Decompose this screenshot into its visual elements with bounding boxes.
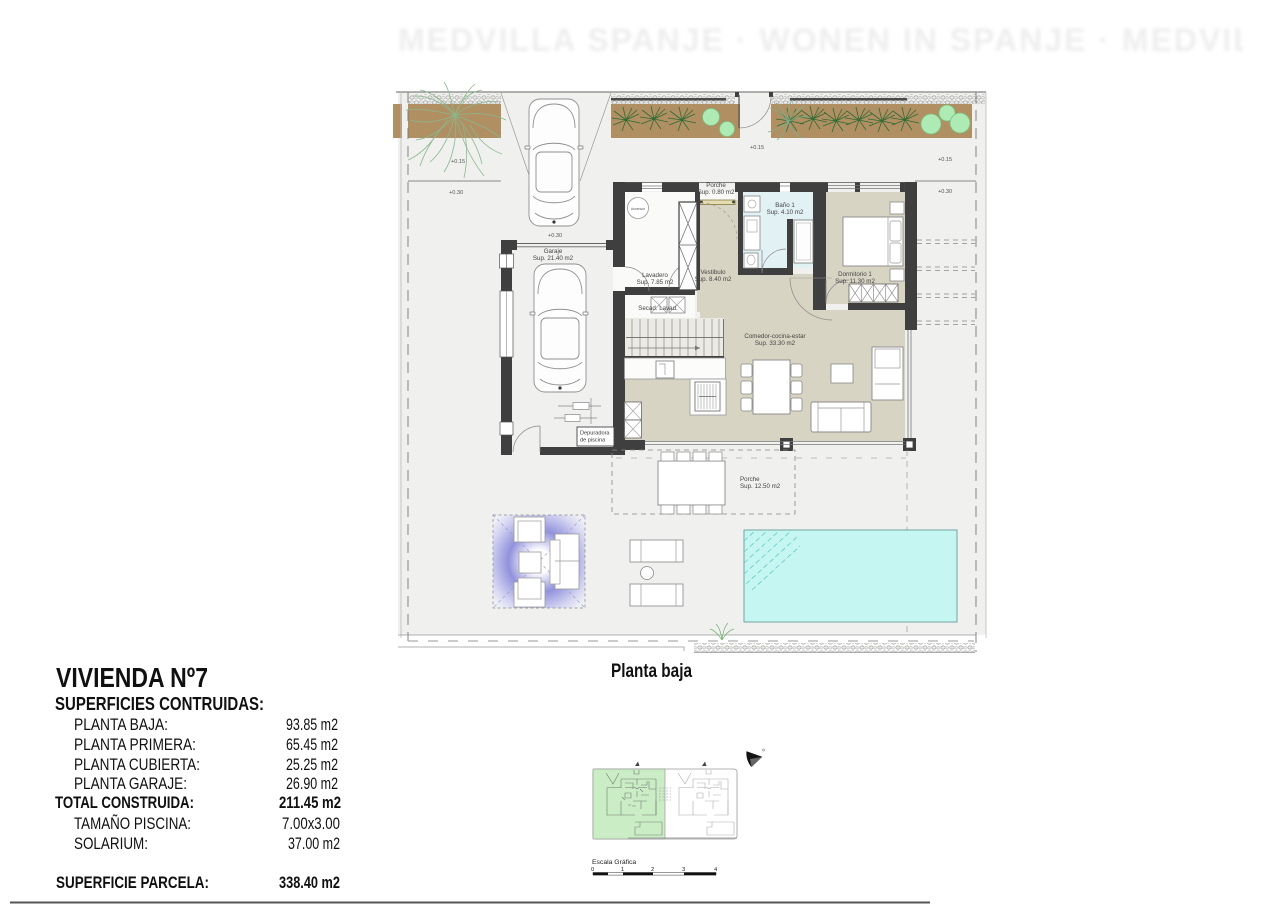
svg-text:PLANTA GARAJE:: PLANTA GARAJE: xyxy=(74,775,187,793)
svg-text:Sup. 33.30 m2: Sup. 33.30 m2 xyxy=(755,340,796,347)
svg-text:Lavadero: Lavadero xyxy=(642,272,668,279)
svg-text:Depuradora: Depuradora xyxy=(580,431,610,437)
svg-text:TOTAL CONSTRUIDA:: TOTAL CONSTRUIDA: xyxy=(55,794,194,812)
svg-text:+0.15: +0.15 xyxy=(750,145,764,151)
svg-text:Sup. 21.40 m2: Sup. 21.40 m2 xyxy=(533,255,574,262)
svg-text:+0.15: +0.15 xyxy=(451,159,465,165)
svg-text:Baño 1: Baño 1 xyxy=(775,202,795,209)
svg-text:4: 4 xyxy=(714,867,718,873)
svg-text:0: 0 xyxy=(591,867,594,873)
svg-text:93.85 m2: 93.85 m2 xyxy=(286,716,338,734)
svg-text:Sup. 8.40 m2: Sup. 8.40 m2 xyxy=(695,276,732,283)
svg-text:Sup. 11.30 m2: Sup. 11.30 m2 xyxy=(835,278,875,285)
svg-text:Sup. 0.80 m2: Sup. 0.80 m2 xyxy=(698,189,735,196)
svg-text:3: 3 xyxy=(682,867,685,873)
svg-text:7.00x3.00: 7.00x3.00 xyxy=(282,815,340,833)
svg-text:1: 1 xyxy=(621,867,624,873)
svg-text:Sup. 7.85 m2: Sup. 7.85 m2 xyxy=(637,279,674,286)
svg-text:+0.30: +0.30 xyxy=(548,233,562,239)
svg-text:de piscina: de piscina xyxy=(580,438,606,444)
svg-text:Secad. Lavad.: Secad. Lavad. xyxy=(638,305,678,312)
svg-text:TAMAÑO PISCINA:: TAMAÑO PISCINA: xyxy=(74,813,191,833)
svg-text:25.25 m2: 25.25 m2 xyxy=(286,756,338,774)
svg-text:26.90 m2: 26.90 m2 xyxy=(286,775,338,793)
svg-text:PLANTA PRIMERA:: PLANTA PRIMERA: xyxy=(74,736,196,754)
svg-text:SOLARIUM:: SOLARIUM: xyxy=(74,835,148,853)
svg-text:Porche: Porche xyxy=(706,182,726,189)
svg-text:PLANTA BAJA:: PLANTA BAJA: xyxy=(74,716,168,734)
svg-text:65.45 m2: 65.45 m2 xyxy=(286,736,338,754)
svg-text:Vestibulo: Vestibulo xyxy=(700,269,726,276)
svg-text:Sup. 12.50 m2: Sup. 12.50 m2 xyxy=(740,483,781,490)
svg-text:+0.30: +0.30 xyxy=(449,190,463,196)
svg-text:Sup. 4.10 m2: Sup. 4.10 m2 xyxy=(767,209,804,216)
svg-text:37.00 m2: 37.00 m2 xyxy=(288,835,340,853)
svg-text:SUPERFICIES CONTRUIDAS:: SUPERFICIES CONTRUIDAS: xyxy=(55,694,264,714)
svg-text:+0.15: +0.15 xyxy=(938,157,952,163)
svg-text:Planta baja: Planta baja xyxy=(611,661,692,682)
svg-text:Dormitorio 1: Dormitorio 1 xyxy=(838,271,872,278)
svg-text:Ascensor: Ascensor xyxy=(631,207,646,211)
svg-text:Comedor-cocina-estar: Comedor-cocina-estar xyxy=(744,333,805,340)
svg-text:338.40 m2: 338.40 m2 xyxy=(279,874,340,892)
svg-text:Escala Gráfica: Escala Gráfica xyxy=(592,859,636,866)
svg-text:VIVIENDA Nº7: VIVIENDA Nº7 xyxy=(56,662,208,693)
svg-text:2: 2 xyxy=(651,867,654,873)
svg-text:+0.30: +0.30 xyxy=(938,189,952,195)
svg-text:SUPERFICIE PARCELA:: SUPERFICIE PARCELA: xyxy=(56,874,209,892)
svg-text:211.45 m2: 211.45 m2 xyxy=(279,794,341,812)
svg-text:PLANTA CUBIERTA:: PLANTA CUBIERTA: xyxy=(74,756,200,774)
svg-text:Garaje: Garaje xyxy=(544,248,563,255)
svg-text:Porche: Porche xyxy=(740,476,760,483)
